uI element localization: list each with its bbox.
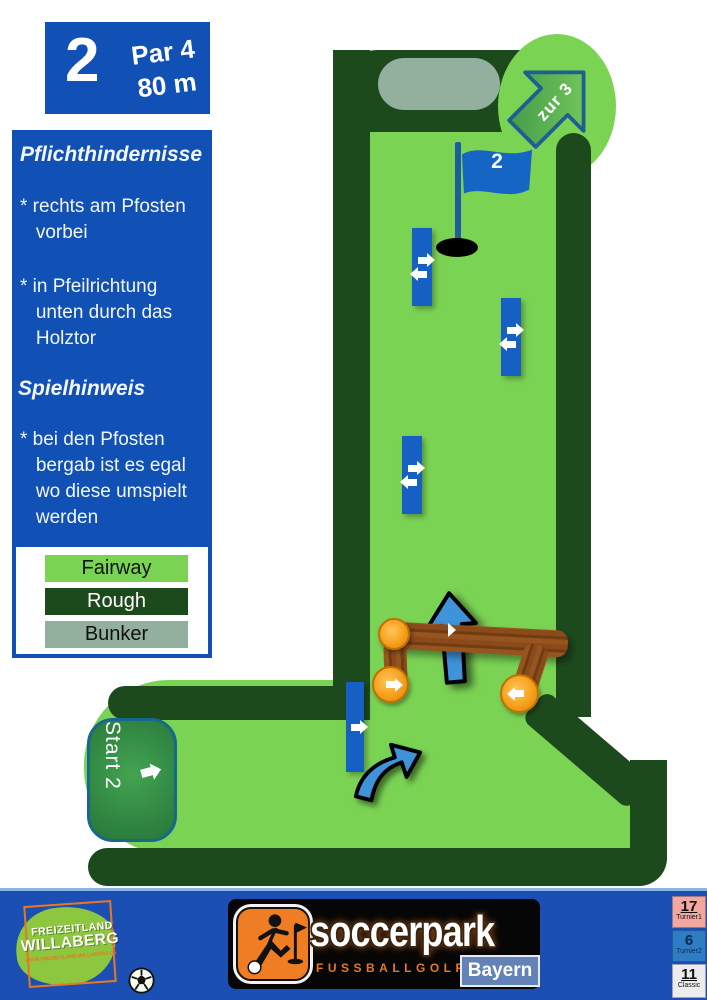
rough-bottom-border xyxy=(88,848,667,886)
post-upper-right xyxy=(501,298,521,376)
score-card-classic: 11 Classic xyxy=(672,964,706,998)
arrow-right-icon xyxy=(507,327,516,334)
log-end-arrow-left xyxy=(500,674,539,713)
arrow-right-icon xyxy=(386,681,395,688)
score-label: Turnier2 xyxy=(673,948,705,955)
post-middle xyxy=(402,436,422,514)
log-end-arrow-right xyxy=(372,666,409,703)
bunker xyxy=(378,58,500,110)
arrow-right-icon xyxy=(408,465,417,472)
brand-icon-tile xyxy=(236,907,310,981)
rough-corridor-top-border xyxy=(108,686,336,720)
score-label: Classic xyxy=(673,982,705,989)
rough-bottom-right-border xyxy=(630,760,667,886)
wood-gate xyxy=(368,586,583,714)
score-label: Turnier1 xyxy=(673,914,705,921)
soccer-ball-icon xyxy=(128,967,155,994)
score-number: 6 xyxy=(673,933,705,948)
park-logo: FREIZEITLAND WILLABERG WWW.FREIZEITLAND-… xyxy=(10,897,160,1000)
soccer-player-icon xyxy=(238,909,308,979)
log-end xyxy=(378,618,410,650)
curved-arrow-icon xyxy=(350,736,428,810)
score-card-turnier1: 17 Turnier1 xyxy=(672,896,706,928)
score-card-turnier2: 6 Turnier2 xyxy=(672,930,706,962)
hole-2-course-sheet: 2 Par 4 80 m Pflichthindernisse * rechts… xyxy=(0,0,707,1000)
brand-region-badge: Bayern xyxy=(460,955,540,987)
start-pad: Start 2 xyxy=(87,718,177,842)
arrow-right-icon xyxy=(418,257,427,264)
arrow-left-icon xyxy=(408,479,417,486)
arrow-left-icon xyxy=(418,271,427,278)
arrow-left-icon xyxy=(507,341,516,348)
footer: FREIZEITLAND WILLABERG WWW.FREIZEITLAND-… xyxy=(0,888,707,1000)
brand-subtitle: FUSSBALLGOLF xyxy=(316,961,467,975)
arrow-right-icon xyxy=(351,724,360,731)
flag-icon: 2 xyxy=(460,144,536,202)
golf-hole xyxy=(436,238,478,257)
brand-name: soccerpark xyxy=(310,907,494,957)
flag-label: 2 xyxy=(482,150,512,174)
rough-left-border xyxy=(333,50,370,720)
arrow-left-icon xyxy=(515,690,524,697)
brand-logo: soccerpark FUSSBALLGOLF Bayern xyxy=(228,899,540,989)
next-hole-arrow: zur 3 xyxy=(506,56,600,150)
start-label: Start 2 xyxy=(100,721,124,839)
score-number: 11 xyxy=(673,967,705,982)
start-arrow-icon xyxy=(140,767,153,778)
post-near-hole xyxy=(412,228,432,306)
course-map: zur 3 2 xyxy=(0,0,707,1000)
score-number: 17 xyxy=(673,899,705,914)
